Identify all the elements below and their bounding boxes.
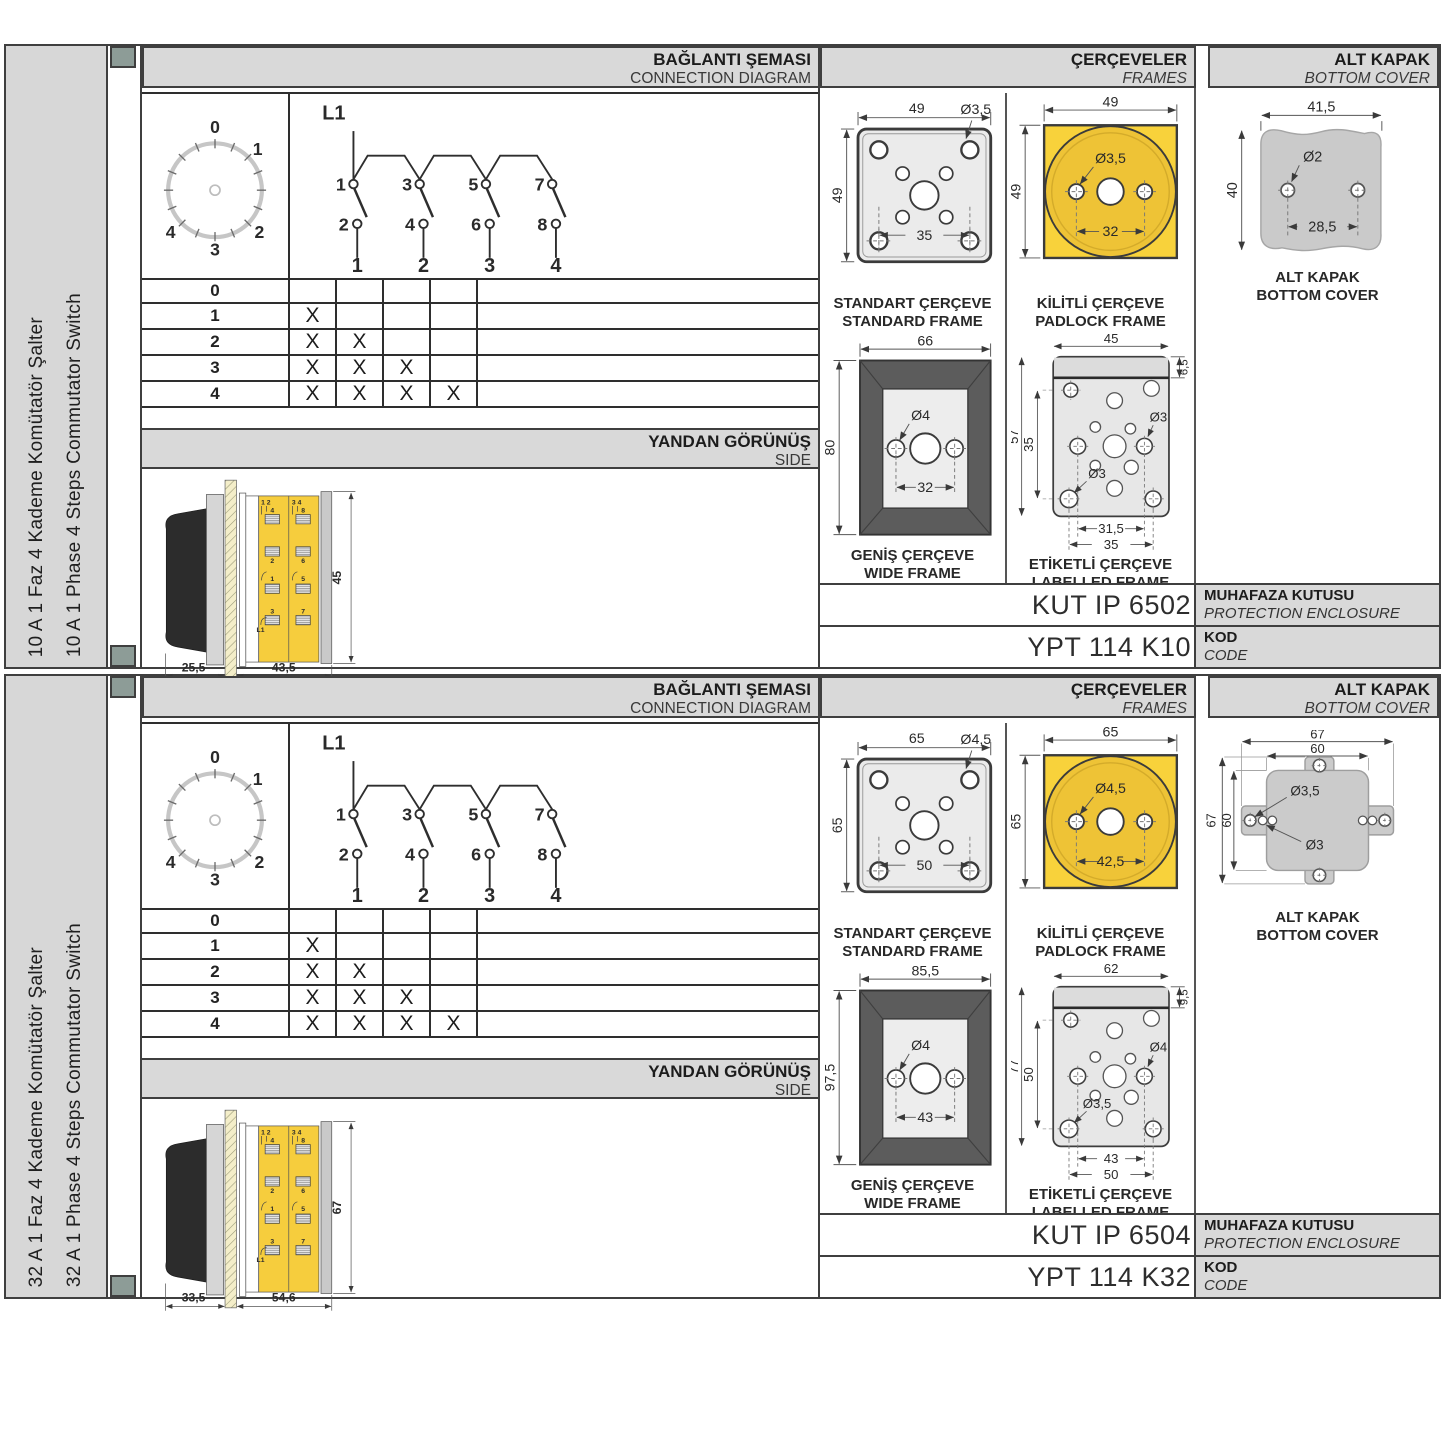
- contact-mark: X: [430, 381, 477, 407]
- contact-mark: [383, 279, 430, 303]
- cover-outer-height-dim: 67: [1205, 813, 1219, 827]
- wide-frame-drawing: 85,5 97,5 Ø4 43: [822, 964, 1004, 1176]
- bottom-cover-header: ALT KAPAK BOTTOM COVER: [1208, 676, 1439, 718]
- hole-diameter-dim: Ø4: [911, 1039, 930, 1055]
- contact-mark: [336, 933, 383, 959]
- table-row: 4 X X X X: [142, 1011, 818, 1037]
- svg-text:5: 5: [468, 805, 478, 825]
- hole-spacing-dim: 32: [917, 480, 933, 496]
- padlock-frame-drawing: 65 65 Ø4,5 42,5: [1010, 723, 1192, 924]
- wide-frame-caption: GENİŞ ÇERÇEVE WIDE FRAME: [851, 547, 974, 586]
- side-view-header: YANDAN GÖRÜNÜŞ SIDE: [142, 1058, 818, 1099]
- frame-height-dim: 49: [829, 187, 845, 203]
- contact-mark: X: [336, 985, 383, 1011]
- pole-wiring-diagram: L1: [298, 97, 812, 273]
- section-sidebar: 10 A 1 Faz 4 Kademe Komütatör Şalter 10 …: [6, 46, 108, 667]
- frame-height-dim: 65: [829, 817, 845, 833]
- dial-position-3: 3: [210, 869, 220, 889]
- standard-frame-cell: 49 Ø3,5 49 35 STANDART ÇERÇEVE STANDARD …: [820, 93, 1007, 334]
- terminal-contacts: [349, 180, 560, 228]
- padlock-frame-cell: 49 49 Ø3,5 32 KİLİTLİ ÇERÇEVE PADLOCK FR…: [1007, 93, 1194, 334]
- table-filler: [477, 381, 818, 407]
- contact-mark: X: [430, 1011, 477, 1037]
- contact-mark: [289, 909, 336, 933]
- hole-diameter-right: Ø4: [1149, 1040, 1167, 1055]
- contact-mark: [430, 303, 477, 329]
- svg-text:5: 5: [301, 1206, 305, 1213]
- table-filler: [477, 1011, 818, 1037]
- side-header-tr: YANDAN GÖRÜNÜŞ: [142, 1062, 811, 1082]
- frame-height-dim: 57: [1011, 430, 1021, 445]
- hole-vspacing-dim: 35: [1021, 438, 1036, 453]
- caption-tr: GENİŞ ÇERÇEVE: [851, 547, 974, 565]
- svg-text:8: 8: [537, 214, 547, 234]
- svg-text:4: 4: [405, 214, 415, 234]
- pole-numbers: 1 2 3 4: [352, 255, 562, 273]
- frame-height-dim: 80: [822, 440, 838, 456]
- switch-handle: [166, 509, 207, 652]
- step-label: 0: [142, 909, 289, 933]
- contact-mark: [336, 303, 383, 329]
- connection-header-en: CONNECTION DIAGRAM: [144, 700, 811, 718]
- table-filler: [477, 303, 818, 329]
- side-header-en: SIDE: [142, 1082, 811, 1100]
- contact-mark: [430, 279, 477, 303]
- standard-frame-drawing: 49 Ø3,5 49 35: [822, 93, 1004, 294]
- frame-width-dim: 65: [1102, 724, 1118, 740]
- enclosure-label-en: PROTECTION ENCLOSURE: [1204, 605, 1433, 623]
- caption-en: WIDE FRAME: [851, 1195, 974, 1213]
- side-view-area: 1 2 3 4 4 2 1 3 8 6 5 7 L1: [142, 469, 818, 685]
- dial-position-0: 0: [210, 747, 220, 767]
- contact-mark: X: [336, 329, 383, 355]
- outer-width-dim: 35: [1103, 537, 1118, 552]
- standard-frame-cell: 65 Ø4,5 65 50 STANDART ÇERÇEVE STANDARD …: [820, 723, 1007, 964]
- step-label: 3: [142, 355, 289, 381]
- caption-en: STANDARD FRAME: [833, 313, 991, 331]
- labelled-frame-cell: 45 6,5 57 35 Ø3 Ø3 31,5 35 ETİKETLİ ÇERÇ…: [1007, 334, 1194, 595]
- lower-terminal-numbers: 2 4 6 8: [339, 844, 548, 864]
- frame-height-dim: 77: [1011, 1060, 1021, 1075]
- dial-position-1: 1: [253, 769, 263, 789]
- side-header-en: SIDE: [142, 452, 811, 470]
- contact-mark: [336, 279, 383, 303]
- accent-square-top: [110, 46, 136, 68]
- cover-header-en: BOTTOM COVER: [1210, 70, 1430, 88]
- table-row: 1 X: [142, 303, 818, 329]
- hole-diameter-dim: Ø4,5: [960, 732, 991, 748]
- body-depth-dim: 54,6: [272, 1290, 296, 1304]
- caption-en: BOTTOM COVER: [1256, 927, 1378, 945]
- table-filler: [477, 985, 818, 1011]
- code-label-en: CODE: [1204, 1277, 1433, 1295]
- rotary-dial-diagram: 0 1 2 3 4: [143, 102, 287, 270]
- upper-terminal-numbers: 1 3 5 7: [336, 175, 545, 195]
- frame-height-dim: 65: [1010, 814, 1024, 830]
- hole-spacing-dim: 50: [916, 858, 932, 874]
- cover-inner-height-dim: 60: [1218, 813, 1233, 827]
- frame-width-dim: 65: [908, 731, 924, 747]
- svg-text:2: 2: [418, 255, 429, 273]
- side-view-header: YANDAN GÖRÜNÜŞ SIDE: [142, 428, 818, 469]
- caption-tr: KİLİTLİ ÇERÇEVE: [1035, 295, 1166, 313]
- body-height-dim: 45: [330, 571, 344, 585]
- svg-text:1: 1: [352, 885, 363, 903]
- pole-numbers: 1 2 3 4: [352, 885, 562, 903]
- table-row: 0: [142, 279, 818, 303]
- svg-text:4: 4: [270, 1137, 274, 1144]
- section-content: BAĞLANTI ŞEMASI CONNECTION DIAGRAM ÇERÇE…: [140, 676, 1439, 1297]
- line-label: L1: [322, 733, 345, 755]
- svg-text:7: 7: [301, 608, 305, 615]
- product-codes: KUT IP 6502 MUHAFAZA KUTUSU PROTECTION E…: [820, 583, 1439, 667]
- table-row: 3 X X X: [142, 355, 818, 381]
- product-title-turkish: 10 A 1 Faz 4 Kademe Komütatör Şalter: [26, 317, 48, 657]
- connection-column: 0 1 2 3 4 L1: [142, 718, 820, 1297]
- enclosure-code-value: KUT IP 6504: [820, 1215, 1194, 1255]
- inner-width-dim: 43: [1103, 1151, 1118, 1166]
- svg-text:3: 3: [484, 255, 495, 273]
- dial-position-1: 1: [253, 139, 263, 159]
- padlock-frame-caption: KİLİTLİ ÇERÇEVE PADLOCK FRAME: [1035, 925, 1166, 964]
- product-codes: KUT IP 6504 MUHAFAZA KUTUSU PROTECTION E…: [820, 1213, 1439, 1297]
- product-code-row: YPT 114 K32 KOD CODE: [820, 1255, 1439, 1297]
- svg-text:7: 7: [301, 1238, 305, 1245]
- table-filler: [477, 933, 818, 959]
- caption-en: BOTTOM COVER: [1256, 287, 1378, 305]
- svg-text:3 4: 3 4: [292, 1130, 302, 1137]
- enclosure-label-tr: MUHAFAZA KUTUSU: [1204, 1217, 1433, 1235]
- contact-mark: X: [289, 381, 336, 407]
- product-code-label: KOD CODE: [1194, 1257, 1439, 1297]
- dial-cell: 0 1 2 3 4: [142, 724, 290, 908]
- enclosure-label-en: PROTECTION ENCLOSURE: [1204, 1235, 1433, 1253]
- code-label-tr: KOD: [1204, 1259, 1433, 1277]
- terminal-contacts: [349, 810, 560, 858]
- body-height-dim: 67: [330, 1201, 344, 1215]
- contact-mark: X: [289, 985, 336, 1011]
- wide-frame-cell: 85,5 97,5 Ø4 43 GENİŞ ÇERÇEVE WIDE FRAME: [820, 964, 1007, 1225]
- product-section: 32 A 1 Faz 4 Kademe Komütatör Şalter 32 …: [4, 674, 1441, 1299]
- svg-text:7: 7: [535, 805, 545, 825]
- bottom-cover-header: ALT KAPAK BOTTOM COVER: [1208, 46, 1439, 88]
- enclosure-code-label: MUHAFAZA KUTUSU PROTECTION ENCLOSURE: [1194, 585, 1439, 625]
- svg-text:4: 4: [550, 255, 561, 273]
- product-title-turkish: 32 A 1 Faz 4 Kademe Komütatör Şalter: [26, 947, 48, 1287]
- frames-and-cover-row: 49 Ø3,5 49 35 STANDART ÇERÇEVE STANDARD …: [820, 88, 1439, 583]
- switching-table: 0 1 X: [142, 278, 818, 408]
- frame-width-dim: 49: [908, 101, 924, 117]
- hole-spacing-dim: 32: [1102, 224, 1118, 240]
- step-label: 1: [142, 933, 289, 959]
- frame-width-dim: 45: [1103, 334, 1118, 346]
- contact-mark: X: [336, 959, 383, 985]
- step-label: 2: [142, 329, 289, 355]
- caption-tr: KİLİTLİ ÇERÇEVE: [1035, 925, 1166, 943]
- svg-text:3: 3: [270, 1238, 274, 1245]
- contact-mark: X: [289, 355, 336, 381]
- dial-position-0: 0: [210, 117, 220, 137]
- svg-text:4: 4: [270, 507, 274, 514]
- padlock-frame-caption: KİLİTLİ ÇERÇEVE PADLOCK FRAME: [1035, 295, 1166, 334]
- bottom-cover-column: 41,5 40 Ø2 28,5: [1196, 88, 1439, 583]
- padlock-frame-cell: 65 65 Ø4,5 42,5 KİLİTLİ ÇERÇEVE PADLOCK …: [1007, 723, 1194, 964]
- frames-header: ÇERÇEVELER FRAMES: [820, 46, 1196, 88]
- cover-header-en: BOTTOM COVER: [1210, 700, 1430, 718]
- contact-mark: X: [289, 959, 336, 985]
- code-label-tr: KOD: [1204, 629, 1433, 647]
- body-depth-dim: 43,5: [272, 660, 296, 674]
- strip-height-dim: 9,5: [1178, 990, 1190, 1006]
- contact-mark: X: [289, 1011, 336, 1037]
- svg-text:8: 8: [301, 507, 305, 514]
- connection-diagram-box: 0 1 2 3 4 L1: [142, 92, 818, 278]
- table-row: 1 X: [142, 933, 818, 959]
- cover-outer-width-dim: 67: [1310, 730, 1324, 742]
- product-code-value: YPT 114 K32: [820, 1257, 1194, 1297]
- column-headers: BAĞLANTI ŞEMASI CONNECTION DIAGRAM ÇERÇE…: [142, 46, 1439, 88]
- svg-text:L1: L1: [257, 1257, 265, 1264]
- contact-mark: X: [383, 381, 430, 407]
- section-gutter: [108, 676, 140, 1297]
- contact-mark: X: [383, 355, 430, 381]
- cover-hole-dim: Ø2: [1303, 149, 1322, 165]
- hole-diameter-dim: Ø3,5: [960, 102, 991, 118]
- section-body: 0 1 2 3 4 L1: [142, 718, 1439, 1297]
- bottom-cover-caption: ALT KAPAK BOTTOM COVER: [1256, 909, 1378, 948]
- cover-inner-width-dim: 60: [1310, 741, 1324, 756]
- outer-width-dim: 50: [1103, 1167, 1118, 1182]
- contact-mark: [430, 959, 477, 985]
- svg-text:1 2: 1 2: [261, 500, 271, 507]
- bottom-cover-column: 67 60 67 60 Ø3,5 Ø3 ALT KAPAK BOTTOM COV…: [1196, 718, 1439, 1213]
- pole-wiring-diagram: L1: [298, 727, 812, 903]
- hole-diameter-dim: Ø3,5: [1095, 151, 1126, 167]
- enclosure-code-value: KUT IP 6502: [820, 585, 1194, 625]
- frames-header-tr: ÇERÇEVELER: [822, 50, 1187, 70]
- caption-tr: ALT KAPAK: [1256, 269, 1378, 287]
- wiring-cell: L1: [290, 94, 818, 278]
- frame-height-dim: 49: [1010, 184, 1024, 200]
- contact-mark: [430, 329, 477, 355]
- svg-text:1: 1: [270, 576, 274, 583]
- product-section: 10 A 1 Faz 4 Kademe Komütatör Şalter 10 …: [4, 44, 1441, 669]
- contact-mark: X: [289, 933, 336, 959]
- handle-depth-dim: 33,5: [182, 1290, 206, 1304]
- hole-diameter-left: Ø3,5: [1082, 1096, 1111, 1111]
- dial-ticks: [164, 139, 266, 241]
- hole-vspacing-dim: 50: [1021, 1068, 1036, 1083]
- svg-text:5: 5: [301, 576, 305, 583]
- svg-text:8: 8: [301, 1137, 305, 1144]
- hole-diameter-dim: Ø4: [911, 409, 930, 425]
- lower-terminal-numbers: 2 4 6 8: [339, 214, 548, 234]
- labelled-frame-cell: 62 9,5 77 50 Ø4 Ø3,5 43 50 ETİKETLİ ÇERÇ…: [1007, 964, 1194, 1225]
- labelled-frame-drawing: 62 9,5 77 50 Ø4 Ø3,5 43 50: [1011, 964, 1191, 1185]
- svg-text:1: 1: [336, 175, 346, 195]
- table-filler: [477, 909, 818, 933]
- step-label: 0: [142, 279, 289, 303]
- contact-mark: [336, 909, 383, 933]
- connection-column: 0 1 2 3 4 L1: [142, 88, 820, 667]
- product-code-row: YPT 114 K10 KOD CODE: [820, 625, 1439, 667]
- svg-text:2: 2: [418, 885, 429, 903]
- svg-text:L1: L1: [257, 627, 265, 634]
- connection-header-en: CONNECTION DIAGRAM: [144, 70, 811, 88]
- section-content: BAĞLANTI ŞEMASI CONNECTION DIAGRAM ÇERÇE…: [140, 46, 1439, 667]
- code-label-en: CODE: [1204, 647, 1433, 665]
- contact-mark: X: [336, 1011, 383, 1037]
- section-body: 0 1 2 3 4 L1: [142, 88, 1439, 667]
- dial-position-3: 3: [210, 239, 220, 259]
- wiring-lines: [353, 131, 565, 258]
- contact-mark: X: [336, 355, 383, 381]
- padlock-frame-drawing: 49 49 Ø3,5 32: [1010, 93, 1192, 294]
- contact-mark: X: [289, 303, 336, 329]
- dial-position-2: 2: [254, 852, 264, 872]
- caption-tr: STANDART ÇERÇEVE: [833, 295, 991, 313]
- cover-width-dim: 41,5: [1307, 100, 1335, 116]
- bottom-cover-drawing: 67 60 67 60 Ø3,5 Ø3: [1205, 730, 1431, 908]
- svg-text:4: 4: [405, 844, 415, 864]
- table-filler: [477, 355, 818, 381]
- header-gap: [1196, 676, 1208, 718]
- standard-frame-caption: STANDART ÇERÇEVE STANDARD FRAME: [833, 295, 991, 334]
- right-columns: 65 Ø4,5 65 50 STANDART ÇERÇEVE STANDARD …: [820, 718, 1439, 1297]
- caption-tr: ALT KAPAK: [1256, 909, 1378, 927]
- inner-width-dim: 31,5: [1098, 521, 1124, 536]
- caption-tr: STANDART ÇERÇEVE: [833, 925, 991, 943]
- frames-column: 49 Ø3,5 49 35 STANDART ÇERÇEVE STANDARD …: [820, 88, 1196, 583]
- bottom-cover-drawing: 41,5 40 Ø2 28,5: [1205, 100, 1431, 268]
- labelled-frame-drawing: 45 6,5 57 35 Ø3 Ø3 31,5 35: [1011, 334, 1191, 555]
- svg-text:3: 3: [270, 608, 274, 615]
- handle-depth-dim: 25,5: [182, 660, 206, 674]
- svg-text:6: 6: [471, 214, 481, 234]
- wide-frame-caption: GENİŞ ÇERÇEVE WIDE FRAME: [851, 1177, 974, 1216]
- caption-en: WIDE FRAME: [851, 565, 974, 583]
- frames-and-cover-row: 65 Ø4,5 65 50 STANDART ÇERÇEVE STANDARD …: [820, 718, 1439, 1213]
- frames-header-en: FRAMES: [822, 70, 1187, 88]
- cover-header-tr: ALT KAPAK: [1210, 680, 1430, 700]
- dial-position-4: 4: [166, 222, 176, 242]
- frames-column: 65 Ø4,5 65 50 STANDART ÇERÇEVE STANDARD …: [820, 718, 1196, 1213]
- contact-mark: [383, 933, 430, 959]
- product-title-english: 32 A 1 Phase 4 Steps Commutator Switch: [64, 923, 86, 1287]
- panel-plate: [225, 480, 236, 678]
- contact-mark: [430, 985, 477, 1011]
- dial-cell: 0 1 2 3 4: [142, 94, 290, 278]
- connection-header-tr: BAĞLANTI ŞEMASI: [144, 50, 811, 70]
- table-row: 3 X X X: [142, 985, 818, 1011]
- frame-width-dim: 66: [917, 334, 933, 349]
- svg-text:6: 6: [471, 844, 481, 864]
- upper-terminal-numbers: 1 3 5 7: [336, 805, 545, 825]
- table-row: 2 X X: [142, 959, 818, 985]
- hole-diameter-left: Ø3: [1088, 466, 1106, 481]
- svg-text:2: 2: [270, 1188, 274, 1195]
- contact-mark: [383, 959, 430, 985]
- svg-text:5: 5: [468, 175, 478, 195]
- svg-text:3: 3: [402, 175, 412, 195]
- contact-mark: [430, 355, 477, 381]
- hole-spacing-dim: 42,5: [1096, 854, 1124, 870]
- svg-text:4: 4: [550, 885, 561, 903]
- switch-side-drawing: 1 2 3 4 4 2 1 3 8 6 5 7 L1: [152, 473, 374, 685]
- switching-table: 0 1 X: [142, 908, 818, 1038]
- panel-plate: [225, 1110, 236, 1308]
- bottom-cover-caption: ALT KAPAK BOTTOM COVER: [1256, 269, 1378, 308]
- section-sidebar: 32 A 1 Faz 4 Kademe Komütatör Şalter 32 …: [6, 676, 108, 1297]
- caption-tr: GENİŞ ÇERÇEVE: [851, 1177, 974, 1195]
- svg-text:2: 2: [339, 844, 349, 864]
- contact-mark: [383, 909, 430, 933]
- step-label: 3: [142, 985, 289, 1011]
- frames-header-en: FRAMES: [822, 700, 1187, 718]
- svg-text:2: 2: [270, 558, 274, 565]
- contact-mark: [383, 303, 430, 329]
- frame-width-dim: 85,5: [911, 964, 939, 979]
- wide-frame-cell: 66 80 Ø4 32 GENİŞ ÇERÇEVE WIDE FRAME: [820, 334, 1007, 595]
- svg-text:3 4: 3 4: [292, 500, 302, 507]
- switch-side-drawing: 1 2 3 4 4 2 1 3 8 6 5 7 L1: [152, 1103, 374, 1315]
- table-filler: [477, 959, 818, 985]
- wide-frame-drawing: 66 80 Ø4 32: [822, 334, 1004, 546]
- table-row: 0: [142, 909, 818, 933]
- column-headers: BAĞLANTI ŞEMASI CONNECTION DIAGRAM ÇERÇE…: [142, 676, 1439, 718]
- hole-diameter-dim: Ø4,5: [1095, 781, 1126, 797]
- right-columns: 49 Ø3,5 49 35 STANDART ÇERÇEVE STANDARD …: [820, 88, 1439, 667]
- caption-tr: ETİKETLİ ÇERÇEVE: [1029, 1186, 1172, 1204]
- connection-diagram-box: 0 1 2 3 4 L1: [142, 722, 818, 908]
- contact-mark: [383, 329, 430, 355]
- step-label: 1: [142, 303, 289, 329]
- cover-hole-small-dim: Ø3: [1305, 837, 1323, 852]
- section-gutter: [108, 46, 140, 667]
- svg-text:1: 1: [270, 1206, 274, 1213]
- wiring-cell: L1: [290, 724, 818, 908]
- catalog-page: 10 A 1 Faz 4 Kademe Komütatör Şalter 10 …: [0, 0, 1445, 1299]
- connection-diagram-header: BAĞLANTI ŞEMASI CONNECTION DIAGRAM: [142, 676, 820, 718]
- svg-text:6: 6: [301, 558, 305, 565]
- table-spacer: [142, 408, 818, 428]
- connection-header-tr: BAĞLANTI ŞEMASI: [144, 680, 811, 700]
- enclosure-code-row: KUT IP 6502 MUHAFAZA KUTUSU PROTECTION E…: [820, 585, 1439, 625]
- svg-text:1: 1: [352, 255, 363, 273]
- frame-width-dim: 62: [1103, 964, 1118, 976]
- svg-text:3: 3: [484, 885, 495, 903]
- accent-square-bottom: [110, 1275, 136, 1297]
- contact-mark: X: [336, 381, 383, 407]
- dial-ticks: [164, 769, 266, 871]
- svg-text:1 2: 1 2: [261, 1130, 271, 1137]
- cover-spacing-dim: 28,5: [1308, 220, 1336, 236]
- table-row: 4 X X X X: [142, 381, 818, 407]
- contact-mark: [289, 279, 336, 303]
- cover-header-tr: ALT KAPAK: [1210, 50, 1430, 70]
- svg-text:6: 6: [301, 1188, 305, 1195]
- standard-frame-caption: STANDART ÇERÇEVE STANDARD FRAME: [833, 925, 991, 964]
- svg-text:1: 1: [336, 805, 346, 825]
- hole-spacing-dim: 35: [916, 228, 932, 244]
- header-gap: [1196, 46, 1208, 88]
- contact-mark: X: [289, 329, 336, 355]
- frame-height-dim: 97,5: [822, 1064, 838, 1092]
- dial-position-2: 2: [254, 222, 264, 242]
- accent-square-top: [110, 676, 136, 698]
- step-label: 4: [142, 381, 289, 407]
- side-header-tr: YANDAN GÖRÜNÜŞ: [142, 432, 811, 452]
